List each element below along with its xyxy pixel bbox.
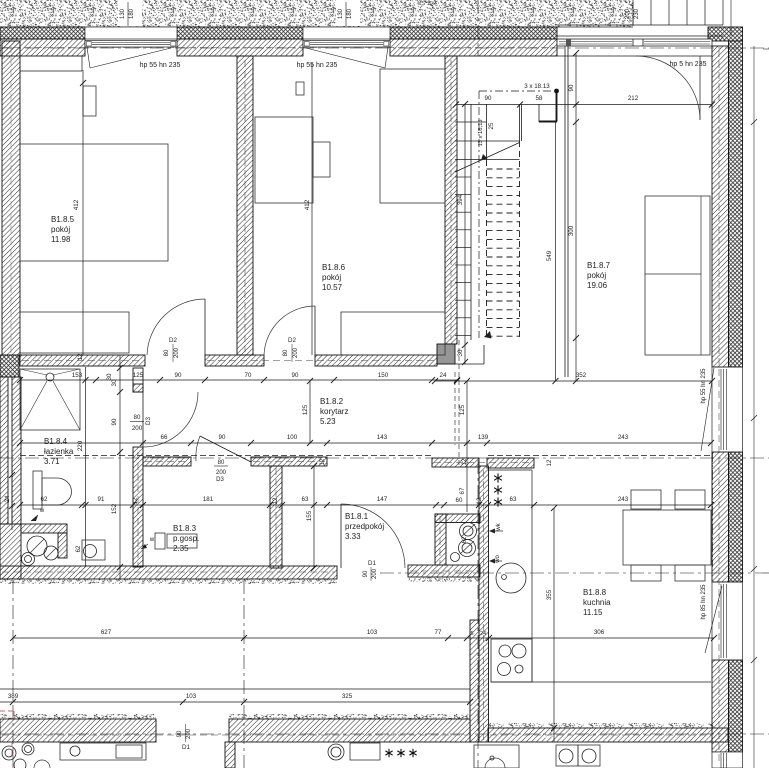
svg-text:3.71: 3.71: [44, 457, 60, 466]
svg-text:24: 24: [440, 372, 447, 379]
svg-text:kuchnia: kuchnia: [583, 598, 611, 607]
svg-text:30: 30: [457, 349, 464, 356]
svg-text:30: 30: [106, 373, 113, 380]
svg-text:2.35: 2.35: [173, 544, 189, 553]
svg-text:150: 150: [378, 372, 389, 379]
svg-text:243: 243: [618, 434, 629, 441]
svg-text:D2: D2: [288, 337, 296, 344]
svg-text:143: 143: [377, 434, 388, 441]
svg-text:200: 200: [625, 8, 631, 19]
svg-text:90: 90: [175, 372, 182, 379]
svg-text:412: 412: [73, 199, 80, 210]
svg-text:KS 100: KS 100: [418, 1, 436, 7]
svg-text:B1.8.1: B1.8.1: [345, 512, 369, 521]
svg-text:D3: D3: [216, 477, 224, 483]
svg-text:80: 80: [134, 414, 141, 421]
svg-text:355: 355: [546, 589, 553, 600]
svg-text:125: 125: [302, 404, 309, 415]
svg-text:155: 155: [306, 510, 313, 521]
svg-text:152: 152: [111, 503, 118, 514]
svg-text:pokój: pokój: [322, 273, 341, 282]
svg-text:11.15: 11.15: [583, 608, 603, 617]
svg-text:D3: D3: [145, 416, 152, 424]
svg-text:91: 91: [98, 496, 105, 503]
svg-text:200: 200: [372, 568, 378, 579]
svg-text:220: 220: [77, 440, 84, 451]
svg-text:30: 30: [111, 379, 118, 386]
svg-text:180: 180: [347, 8, 353, 19]
svg-text:hp 5 hn 235: hp 5 hn 235: [670, 61, 707, 68]
svg-text:90: 90: [363, 570, 369, 577]
svg-text:3 x 18.13: 3 x 18.13: [524, 83, 550, 90]
svg-text:200: 200: [174, 347, 180, 358]
svg-text:200: 200: [293, 347, 299, 358]
svg-text:D1: D1: [182, 744, 190, 751]
svg-text:306: 306: [594, 629, 605, 636]
svg-text:3.33: 3.33: [345, 532, 361, 541]
svg-text:80: 80: [218, 460, 225, 466]
svg-text:325: 325: [342, 693, 353, 700]
svg-text:66: 66: [161, 434, 168, 441]
svg-text:10.57: 10.57: [322, 283, 343, 292]
svg-text:103: 103: [186, 693, 197, 700]
svg-text:p.gosp.: p.gosp.: [173, 534, 199, 543]
svg-text:77: 77: [435, 629, 442, 636]
svg-text:212: 212: [628, 95, 639, 102]
svg-text:wo: wo: [495, 555, 501, 564]
svg-text:13 x 18,13: 13 x 18,13: [478, 119, 484, 146]
svg-text:90: 90: [485, 95, 492, 102]
svg-text:130: 130: [338, 8, 344, 19]
svg-text:hp 55 hn 235: hp 55 hn 235: [701, 368, 707, 404]
svg-text:125: 125: [459, 404, 466, 415]
svg-text:200: 200: [132, 425, 143, 432]
svg-text:11.98: 11.98: [51, 235, 71, 244]
svg-text:hp 55 hn 235: hp 55 hn 235: [140, 62, 181, 69]
svg-text:19.06: 19.06: [587, 281, 608, 290]
svg-text:przedpokój: przedpokój: [345, 522, 384, 531]
svg-text:90: 90: [177, 730, 183, 737]
svg-text:62: 62: [76, 545, 82, 552]
svg-text:394: 394: [457, 194, 464, 205]
svg-text:90: 90: [111, 418, 118, 425]
svg-text:B1.8.6: B1.8.6: [322, 263, 346, 272]
svg-text:70: 70: [245, 372, 252, 379]
svg-text:B1.8.2: B1.8.2: [320, 397, 344, 406]
svg-text:549: 549: [546, 250, 553, 261]
svg-text:139: 139: [478, 434, 489, 441]
svg-text:243: 243: [618, 496, 629, 503]
svg-text:181: 181: [203, 496, 214, 503]
svg-text:627: 627: [101, 629, 112, 636]
svg-text:153: 153: [72, 372, 83, 379]
svg-text:90: 90: [568, 84, 575, 91]
svg-text:B1.8.3: B1.8.3: [173, 524, 197, 533]
svg-text:147: 147: [377, 496, 388, 503]
svg-text:62: 62: [462, 536, 468, 543]
svg-text:103: 103: [367, 629, 378, 636]
svg-text:200: 200: [186, 728, 192, 739]
svg-text:5.23: 5.23: [320, 417, 336, 426]
svg-text:w: w: [39, 508, 45, 514]
svg-text:130: 130: [120, 8, 126, 19]
svg-text:230: 230: [634, 8, 640, 19]
svg-text:63: 63: [302, 496, 309, 503]
svg-text:12: 12: [547, 459, 553, 466]
svg-text:w: w: [149, 537, 155, 543]
svg-text:90: 90: [292, 372, 299, 379]
svg-text:63: 63: [510, 496, 517, 503]
svg-text:58: 58: [536, 95, 543, 102]
svg-text:80: 80: [164, 349, 170, 356]
svg-text:24: 24: [480, 631, 486, 637]
svg-text:80: 80: [283, 349, 289, 356]
svg-text:łazienka: łazienka: [44, 447, 74, 456]
svg-text:180: 180: [129, 8, 135, 19]
svg-text:125: 125: [133, 372, 144, 379]
svg-text:wk: wk: [496, 522, 502, 531]
svg-text:D1: D1: [368, 560, 376, 567]
svg-text:352: 352: [576, 372, 587, 379]
svg-text:300: 300: [568, 225, 575, 236]
svg-text:25: 25: [488, 122, 495, 129]
svg-text:pokój: pokój: [587, 271, 606, 280]
svg-text:200: 200: [216, 470, 227, 476]
svg-text:hp 55 hn 235: hp 55 hn 235: [297, 62, 338, 69]
svg-text:12: 12: [77, 353, 84, 360]
svg-text:B1.8.7: B1.8.7: [587, 261, 611, 270]
svg-text:60: 60: [456, 497, 463, 504]
svg-text:100: 100: [287, 434, 298, 441]
svg-text:412: 412: [304, 199, 311, 210]
svg-text:B1.8.5: B1.8.5: [51, 215, 75, 224]
svg-text:62: 62: [41, 496, 48, 503]
svg-text:korytarz: korytarz: [320, 407, 348, 416]
svg-text:67: 67: [459, 487, 466, 494]
svg-text:24: 24: [4, 495, 11, 502]
svg-text:D2: D2: [169, 337, 177, 344]
svg-text:B1.8.4: B1.8.4: [44, 437, 68, 446]
svg-text:B1.8.8: B1.8.8: [583, 588, 607, 597]
svg-text:hp 85 hn 235: hp 85 hn 235: [701, 584, 707, 620]
svg-text:pokój: pokój: [51, 225, 70, 234]
svg-text:90: 90: [219, 434, 226, 441]
